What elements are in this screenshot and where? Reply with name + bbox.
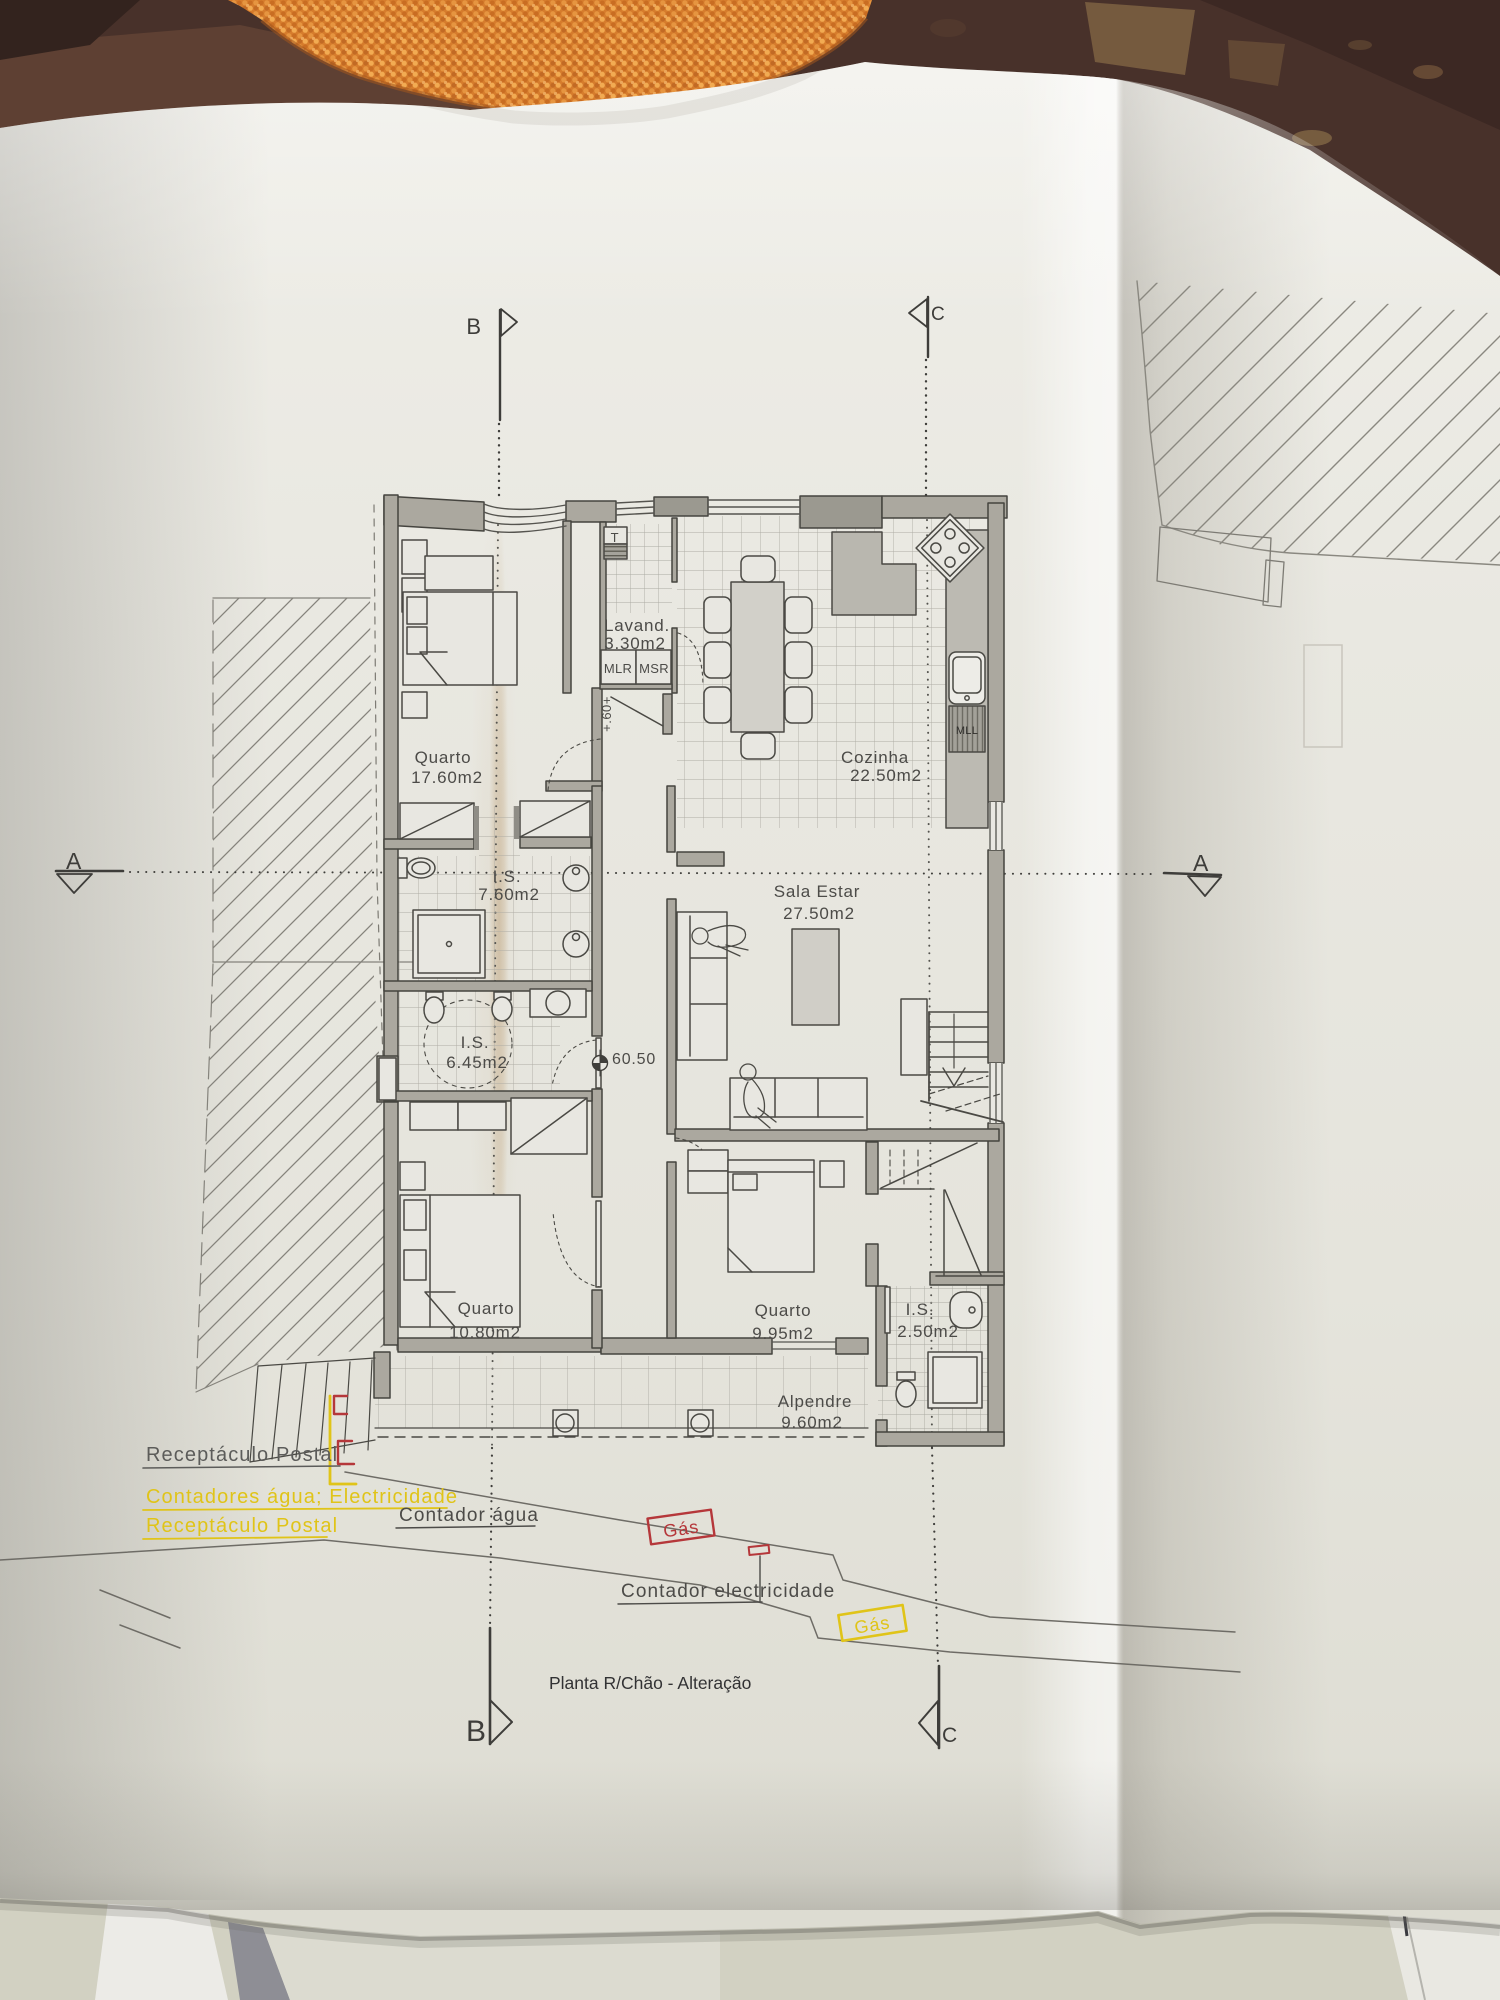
svg-text:6.45m2: 6.45m2 xyxy=(446,1053,508,1072)
svg-text:C: C xyxy=(931,304,945,325)
svg-text:3.30m2: 3.30m2 xyxy=(604,634,666,653)
svg-text:17.60m2: 17.60m2 xyxy=(411,768,483,787)
svg-text:2.50m2: 2.50m2 xyxy=(897,1322,959,1341)
svg-text:Sala Estar: Sala Estar xyxy=(774,882,860,901)
svg-text:C: C xyxy=(942,1724,957,1747)
svg-text:10.80m2: 10.80m2 xyxy=(449,1323,521,1342)
svg-text:60.50: 60.50 xyxy=(612,1051,656,1068)
svg-text:MLL: MLL xyxy=(956,725,978,737)
svg-text:B: B xyxy=(466,314,481,339)
svg-text:9.95m2: 9.95m2 xyxy=(752,1324,814,1343)
svg-text:7.60m2: 7.60m2 xyxy=(478,885,540,904)
svg-text:22.50m2: 22.50m2 xyxy=(850,766,922,785)
svg-text:9.60m2: 9.60m2 xyxy=(781,1413,843,1432)
svg-text:B: B xyxy=(466,1715,486,1748)
svg-text:Contador água: Contador água xyxy=(399,1505,539,1526)
svg-text:+.60+: +.60+ xyxy=(599,696,614,732)
svg-text:I.S.: I.S. xyxy=(906,1300,935,1319)
svg-text:Quarto: Quarto xyxy=(415,748,472,767)
svg-text:I.S.: I.S. xyxy=(461,1033,490,1052)
svg-text:Cozinha: Cozinha xyxy=(841,748,909,767)
svg-text:Receptáculo Postal: Receptáculo Postal xyxy=(146,1444,338,1466)
svg-text:Planta R/Chão - Alteração: Planta R/Chão - Alteração xyxy=(549,1673,751,1693)
svg-text:Quarto: Quarto xyxy=(458,1299,515,1318)
svg-text:Alpendre: Alpendre xyxy=(778,1392,852,1411)
svg-text:27.50m2: 27.50m2 xyxy=(783,904,855,923)
svg-text:I.S.: I.S. xyxy=(493,867,522,886)
svg-text:Receptáculo Postal: Receptáculo Postal xyxy=(146,1515,338,1537)
svg-text:MSR: MSR xyxy=(639,661,669,676)
svg-text:Lavand.: Lavand. xyxy=(604,616,670,635)
svg-text:Quarto: Quarto xyxy=(755,1301,812,1320)
svg-text:MLR: MLR xyxy=(604,661,632,676)
svg-text:Contador electricidade: Contador electricidade xyxy=(621,1581,835,1602)
svg-text:T: T xyxy=(611,530,620,545)
svg-text:A: A xyxy=(1193,850,1209,876)
svg-text:A: A xyxy=(66,848,82,874)
